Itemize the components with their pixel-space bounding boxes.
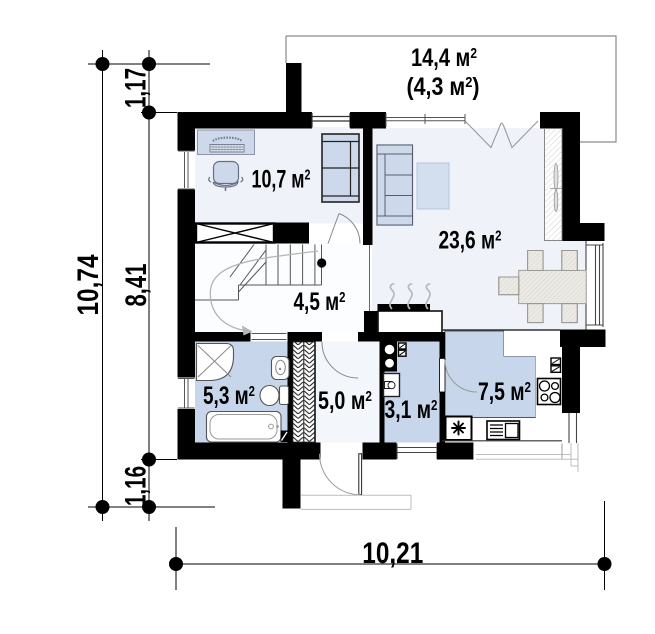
svg-text:7,5 м2: 7,5 м2	[478, 378, 531, 406]
svg-text:1,17: 1,17	[120, 68, 153, 108]
svg-text:10,7 м2: 10,7 м2	[252, 166, 311, 194]
svg-text:8,41: 8,41	[120, 264, 153, 307]
svg-text:1,16: 1,16	[120, 466, 153, 506]
svg-text:10,21: 10,21	[362, 537, 423, 570]
svg-text:5,0 м2: 5,0 м2	[318, 387, 372, 415]
svg-text:14,4 м2: 14,4 м2	[411, 44, 477, 72]
svg-text:4,5 м2: 4,5 м2	[294, 288, 346, 316]
svg-text:10,74: 10,74	[72, 254, 105, 315]
svg-text:3,1 м2: 3,1 м2	[385, 396, 438, 424]
svg-text:23,6 м2: 23,6 м2	[439, 227, 502, 255]
svg-text:5,3 м2: 5,3 м2	[203, 382, 255, 410]
